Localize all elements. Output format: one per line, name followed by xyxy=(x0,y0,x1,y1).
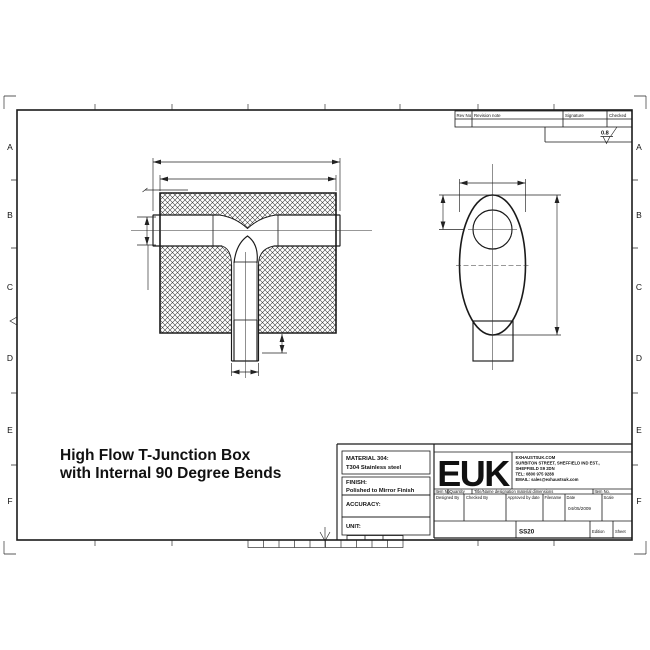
zone-letter: E xyxy=(636,425,642,435)
zone-letter: A xyxy=(7,142,13,152)
item-no2-header: Item No. xyxy=(595,489,610,494)
scale-bar xyxy=(248,540,403,548)
date-value: 04/05/2009 xyxy=(568,506,591,511)
dimension-bottom-stub xyxy=(232,363,259,376)
drawing-sheet: A B C D E F A B C D E F Rev No Revision … xyxy=(0,0,650,650)
company-street: SURBITON STREET, SHEFFIELD IND EST., xyxy=(516,461,600,466)
surface-finish-symbol: 0.8 xyxy=(601,127,618,144)
item-no-header: Item No xyxy=(436,489,451,494)
material-label: MATERIAL 304: xyxy=(346,456,389,462)
vertical-pipe-outline xyxy=(232,265,259,361)
rev-no-header: Rev No xyxy=(457,113,472,118)
zone-letter: B xyxy=(636,210,642,220)
checked-header: Checked xyxy=(609,113,627,118)
dimension-right-stub xyxy=(262,334,287,353)
accuracy-label: ACCURACY: xyxy=(346,502,381,508)
dimension-top-inner xyxy=(160,175,336,191)
leader-top-left xyxy=(143,188,189,192)
zone-letter: F xyxy=(636,496,641,506)
title-line-2: with Internal 90 Degree Bends xyxy=(59,465,281,482)
drawing-title: High Flow T-Junction Box with Internal 9… xyxy=(59,447,281,482)
zone-letter: B xyxy=(7,210,13,220)
surface-finish-value: 0.8 xyxy=(601,131,609,137)
finish-label: FINISH: xyxy=(346,480,367,486)
title-name-header: Title/Name designation material dimensio… xyxy=(474,489,553,494)
edition-label: Edition xyxy=(592,529,605,534)
company-url: EXHAUSTSUK.COM xyxy=(516,455,556,460)
zone-letter: C xyxy=(7,282,13,292)
revision-note-header: Revision note xyxy=(474,113,501,118)
filename-label: Filename xyxy=(545,495,563,500)
designed-by-label: Designed By xyxy=(436,495,460,500)
quantity-header: Quantity xyxy=(450,489,466,494)
unit-label: UNIT: xyxy=(346,524,361,530)
side-view xyxy=(439,164,561,370)
zone-letter: D xyxy=(7,353,13,363)
zone-letter: E xyxy=(7,425,13,435)
zone-letter: A xyxy=(636,142,642,152)
company-email: EMAIL: sales@exhaustsuk.com xyxy=(516,477,579,482)
revision-table: Rev No Revision note Signature Checked 0… xyxy=(455,111,632,144)
zone-letters-left: A B C D E F xyxy=(7,142,13,506)
hatch-left-block xyxy=(160,246,232,333)
hatch-top-band xyxy=(160,193,336,229)
sheet-label: Sheet xyxy=(615,529,627,534)
company-tel: TEL: 0800 975 9288 xyxy=(516,472,555,477)
title-line-1: High Flow T-Junction Box xyxy=(60,447,251,464)
hatch-right-block xyxy=(259,246,337,333)
signature-header: Signature xyxy=(565,113,584,118)
date-label: Date xyxy=(567,495,576,500)
company-address: EXHAUSTSUK.COM SURBITON STREET, SHEFFIEL… xyxy=(516,455,600,482)
approved-by-label: Approved by date xyxy=(508,495,541,500)
dimension-side-height xyxy=(496,195,561,335)
zone-letters-right: A B C D E F xyxy=(636,142,642,506)
zone-letter: C xyxy=(636,282,642,292)
zone-letter: F xyxy=(7,496,12,506)
part-number: SS20 xyxy=(519,529,535,536)
surface-finish-box xyxy=(545,127,632,142)
zone-letter: D xyxy=(636,353,642,363)
front-view xyxy=(131,158,372,378)
material-value: T304 Stainless steel xyxy=(346,465,401,471)
centering-triangle-icon xyxy=(10,317,17,325)
dimension-inlet-offset xyxy=(439,195,464,230)
company-city: SHEFFIELD S9 2DN xyxy=(516,466,555,471)
checked-by-label: Checked By xyxy=(466,495,489,500)
company-logo: EUK xyxy=(437,453,510,494)
title-block: MATERIAL 304: T304 Stainless steel FINIS… xyxy=(337,444,632,540)
finish-value: Polished to Mirror Finish xyxy=(346,488,415,494)
drawing-canvas: A B C D E F A B C D E F Rev No Revision … xyxy=(0,0,650,650)
scale-label: Scale xyxy=(604,495,615,500)
